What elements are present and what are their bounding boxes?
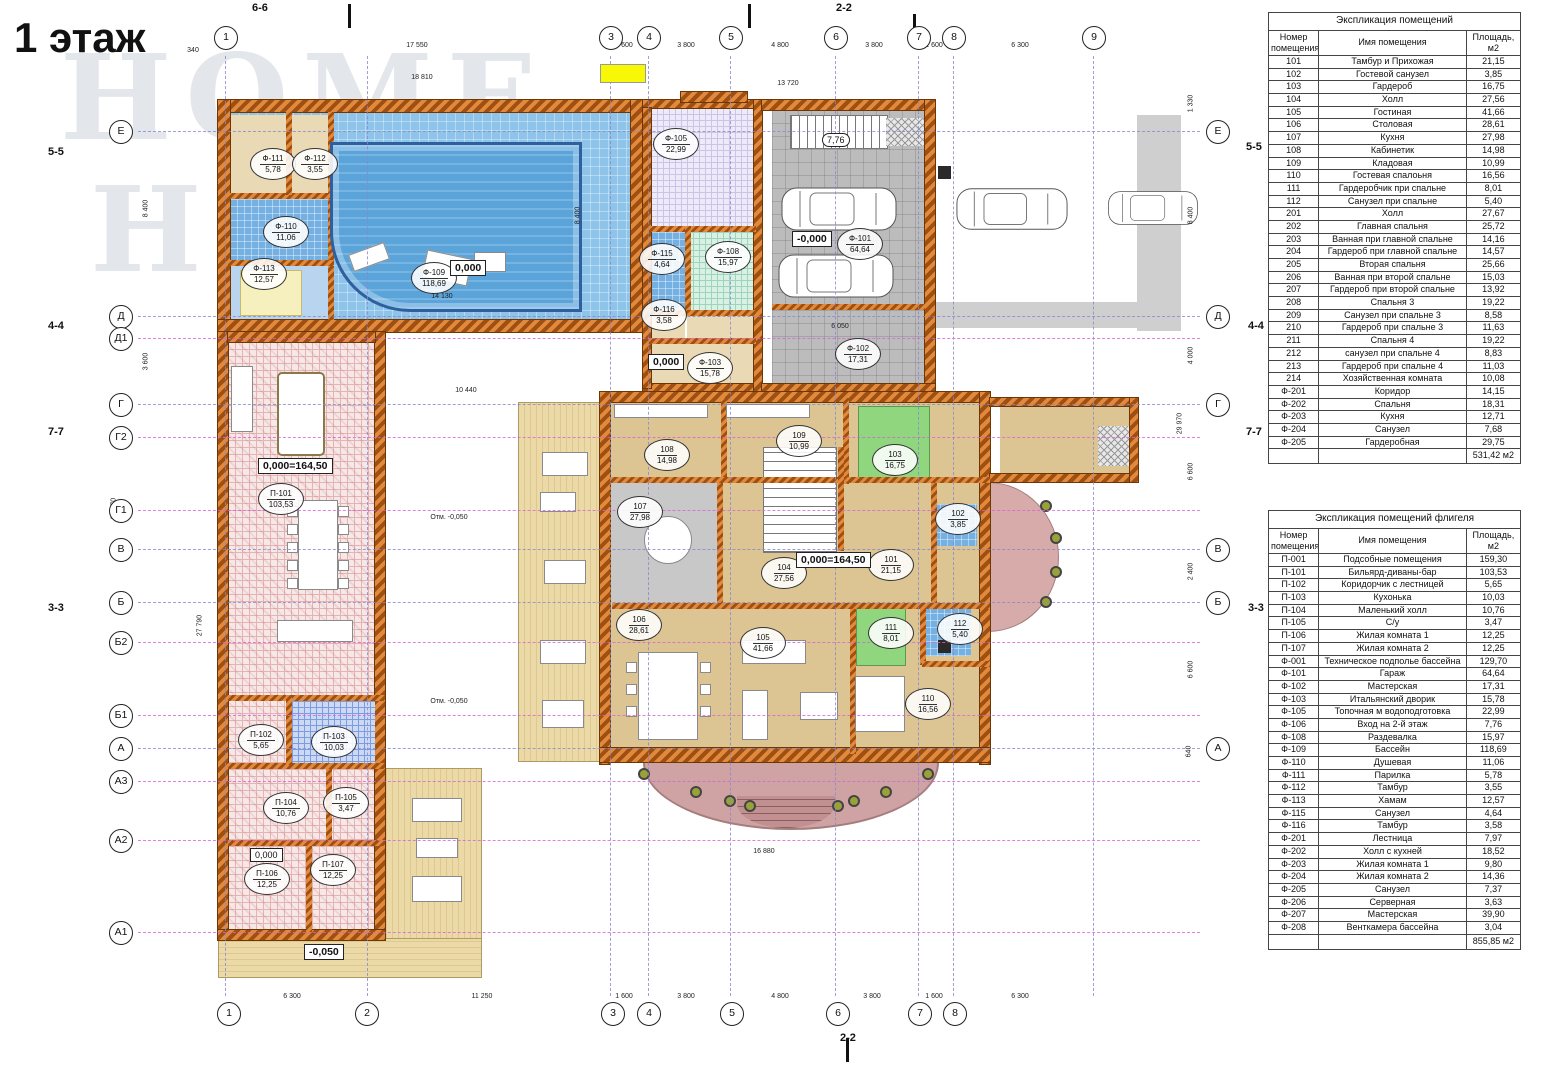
table-cell: 14,16: [1466, 233, 1520, 246]
table-cell: Ф-206: [1269, 896, 1319, 909]
axis-label: 7: [907, 26, 931, 50]
section-marker: 3-3: [48, 602, 64, 614]
grid-line: [138, 642, 1200, 643]
table-cell: Мастерская: [1319, 909, 1467, 922]
axis-label: Б: [109, 591, 133, 615]
room-label: 10814,98: [644, 439, 690, 471]
table-cell: Тамбур: [1319, 782, 1467, 795]
table-row: 210Гардероб при спальне 311,63: [1269, 322, 1521, 335]
table-row: 106Столовая28,61: [1269, 119, 1521, 132]
table-cell: 206: [1269, 271, 1319, 284]
table-row: Ф-109Бассейн118,69: [1269, 744, 1521, 757]
dimension-label: 1 600: [606, 993, 642, 1000]
room-label: П-1053,47: [323, 787, 369, 819]
level-mark: -0,050: [304, 944, 344, 960]
gate-post: [938, 166, 951, 179]
table-cell: 12,71: [1466, 411, 1520, 424]
level-mark: -0,000: [792, 231, 832, 247]
table-cell: Ф-103: [1269, 693, 1319, 706]
table-cell: Ф-111: [1269, 769, 1319, 782]
dimension-label: 27 790: [197, 604, 204, 648]
table-cell: 118,69: [1466, 744, 1520, 757]
table-cell: Душевая: [1319, 757, 1467, 770]
table-row: Ф-115Санузел4,64: [1269, 807, 1521, 820]
grid-line: [138, 715, 1200, 716]
grid-line: [138, 602, 1200, 603]
table-row: Ф-206Серверная3,63: [1269, 896, 1521, 909]
wall: [772, 304, 925, 310]
outdoor-table: [416, 838, 458, 858]
table-cell: [1319, 934, 1467, 949]
table-cell: Вторая спальня: [1319, 259, 1467, 272]
column-icon: [832, 800, 844, 812]
axis-label: 3: [601, 1002, 625, 1026]
axis-label: Е: [1206, 120, 1230, 144]
wall: [762, 100, 935, 110]
dimension-label: 6 300: [1000, 42, 1040, 49]
table-cell: Ф-112: [1269, 782, 1319, 795]
table-cell: Маленький холл: [1319, 604, 1467, 617]
table-row: Ф-201Коридор14,15: [1269, 385, 1521, 398]
dimension-label: 4 800: [762, 993, 798, 1000]
table-row: 206Ванная при второй спальне15,03: [1269, 271, 1521, 284]
table-cell: Ф-113: [1269, 795, 1319, 808]
deck-sofa: [540, 492, 576, 512]
table-cell: Санузел при спальне: [1319, 195, 1467, 208]
deck-sofa: [542, 700, 584, 728]
table-cell: 17,31: [1466, 680, 1520, 693]
section-marker: 2-2: [836, 2, 852, 14]
chair: [287, 524, 298, 535]
table-cell: Коридор: [1319, 385, 1467, 398]
grid-line: [138, 404, 1200, 405]
table-cell: Санузел при спальне 3: [1319, 309, 1467, 322]
table-cell: Гардероб: [1319, 81, 1467, 94]
table-cell: Хозяйственная комната: [1319, 373, 1467, 386]
chair: [338, 542, 349, 553]
corridor-floor: [687, 314, 754, 340]
table-cell: 4,64: [1466, 807, 1520, 820]
table-cell: 111: [1269, 182, 1319, 195]
table-cell: Бильярд-диваны-бар: [1319, 566, 1467, 579]
table-cell: 207: [1269, 284, 1319, 297]
deck-sofa: [540, 640, 586, 664]
table-cell: Гардероб при второй спальне: [1319, 284, 1467, 297]
table-cell: Санузел: [1319, 883, 1467, 896]
room-label: 10910,99: [776, 425, 822, 457]
room-label: 10727,98: [617, 496, 663, 528]
level-mark: 0,000: [450, 260, 486, 276]
table-total: 855,85 м2: [1466, 934, 1520, 949]
axis-label: Г: [1206, 393, 1230, 417]
table-row: П-106Жилая комната 112,25: [1269, 630, 1521, 643]
table-row: Ф-111Парилка5,78: [1269, 769, 1521, 782]
table-cell: 7,97: [1466, 833, 1520, 846]
table-row: Ф-110Душевая11,06: [1269, 757, 1521, 770]
bottom-deck: [218, 938, 482, 978]
table-cell: 3,58: [1466, 820, 1520, 833]
dimension-label: 13 720: [766, 80, 810, 87]
table-cell: 8,01: [1466, 182, 1520, 195]
table-row: 112Санузел при спальне5,40: [1269, 195, 1521, 208]
chair: [338, 506, 349, 517]
table-cell: 27,56: [1466, 94, 1520, 107]
table-cell: Ф-203: [1269, 858, 1319, 871]
section-marker: 3-3: [1248, 602, 1264, 614]
table-cell: Хамам: [1319, 795, 1467, 808]
table-row: 107Кухня27,98: [1269, 132, 1521, 145]
table-cell: 11,03: [1466, 360, 1520, 373]
axis-label: Г2: [109, 426, 133, 450]
dimension-label: 4 800: [762, 42, 798, 49]
kitchen-counter: [614, 404, 708, 418]
table-cell: Ф-201: [1269, 833, 1319, 846]
table-cell: 105: [1269, 106, 1319, 119]
wall: [218, 332, 228, 940]
table-cell: 9,80: [1466, 858, 1520, 871]
room-label: П-101103,53: [258, 483, 304, 515]
table-cell: Техническое подполье бассейна: [1319, 655, 1467, 668]
table-row: Ф-204Жилая комната 214,36: [1269, 871, 1521, 884]
section-marker: 4-4: [48, 320, 64, 332]
table-cell: Лестница: [1319, 833, 1467, 846]
table-cell: 129,70: [1466, 655, 1520, 668]
table-cell: 7,37: [1466, 883, 1520, 896]
room-label: 10316,75: [872, 444, 918, 476]
wall: [990, 474, 1138, 482]
table-cell: Ф-105: [1269, 706, 1319, 719]
column-icon: [1050, 532, 1062, 544]
table-cell: Коридорчик с лестницей: [1319, 579, 1467, 592]
table-title: Экспликация помещений: [1269, 13, 1521, 31]
table-cell: 18,52: [1466, 845, 1520, 858]
table-cell: П-105: [1269, 617, 1319, 630]
table-cell: Ф-208: [1269, 921, 1319, 934]
room-label: Ф-11011,06: [263, 216, 309, 248]
dimension-label: 8 400: [143, 189, 150, 229]
table-row: Ф-205Гардеробная29,75: [1269, 436, 1521, 449]
table-cell: 10,99: [1466, 157, 1520, 170]
wall: [612, 603, 990, 609]
table-cell: 3,04: [1466, 921, 1520, 934]
table-cell: 212: [1269, 347, 1319, 360]
dimension-label: 18 810: [400, 74, 444, 81]
table-cell: 8,58: [1466, 309, 1520, 322]
room-label: Ф-1115,78: [250, 148, 296, 180]
table-cell: 21,15: [1466, 56, 1520, 69]
table-cell: Кладовая: [1319, 157, 1467, 170]
chair: [287, 578, 298, 589]
table-cell: Санузел: [1319, 807, 1467, 820]
table-cell: 208: [1269, 297, 1319, 310]
axis-label: 5: [720, 1002, 744, 1026]
table-cell: 159,30: [1466, 554, 1520, 567]
sofa: [231, 366, 253, 432]
axis-label: Б: [1206, 591, 1230, 615]
chair: [338, 560, 349, 571]
table-cell: 204: [1269, 246, 1319, 259]
column-icon: [1050, 566, 1062, 578]
dimension-label: 4 000: [1188, 337, 1195, 375]
dimension-label: 16 880: [742, 848, 786, 855]
table-cell: Ф-205: [1269, 436, 1319, 449]
axis-label: В: [109, 538, 133, 562]
axis-label: 3: [599, 26, 623, 50]
dimension-label: 6 300: [272, 993, 312, 1000]
dimension-label: 2 400: [1188, 553, 1195, 591]
table-cell: 106: [1269, 119, 1319, 132]
table-cell: П-104: [1269, 604, 1319, 617]
table-cell: Гараж: [1319, 668, 1467, 681]
wall: [931, 483, 937, 603]
axis-label: 1: [217, 1002, 241, 1026]
dimension-label: 8 400: [575, 196, 582, 236]
dimension-label: 3 800: [856, 42, 892, 49]
wall: [685, 226, 691, 314]
room-label: Ф-10164,64: [837, 228, 883, 260]
table-row: 109Кладовая10,99: [1269, 157, 1521, 170]
highlight-marker: [600, 64, 646, 83]
section-tick: [846, 1038, 849, 1062]
table-cell: 10,76: [1466, 604, 1520, 617]
table-cell: Главная спальня: [1319, 220, 1467, 233]
car-icon: [780, 185, 898, 233]
table-cell: 3,85: [1466, 68, 1520, 81]
table-row: Ф-203Жилая комната 19,80: [1269, 858, 1521, 871]
dimension-label: 3 800: [854, 993, 890, 1000]
table-header: Номер помещения: [1269, 528, 1319, 554]
table-row: Ф-112Тамбур3,55: [1269, 782, 1521, 795]
table-cell: 103,53: [1466, 566, 1520, 579]
table-cell: Тамбур и Прихожая: [1319, 56, 1467, 69]
dimension-label: 3 800: [668, 993, 704, 1000]
table-cell: Раздевалка: [1319, 731, 1467, 744]
section-marker: 6-6: [252, 2, 268, 14]
grid-line: [610, 56, 611, 996]
table-cell: П-101: [1269, 566, 1319, 579]
room-label: 1125,40: [937, 613, 983, 645]
dimension-label: 1 600: [916, 993, 952, 1000]
grid-line: [138, 840, 1200, 841]
dimension-label: 3 800: [668, 42, 704, 49]
table-cell: Ванная при главной спальне: [1319, 233, 1467, 246]
table-cell: Парилка: [1319, 769, 1467, 782]
axis-label: Д: [109, 305, 133, 329]
table-cell: Ф-110: [1269, 757, 1319, 770]
table-cell: 28,61: [1466, 119, 1520, 132]
axis-label: В: [1206, 538, 1230, 562]
wall: [600, 392, 610, 764]
table-row: П-105С/у3,47: [1269, 617, 1521, 630]
wall: [228, 332, 375, 342]
table-cell: Гостевая спалоьня: [1319, 170, 1467, 183]
table-cell: 27,98: [1466, 132, 1520, 145]
table-cell: Холл с кухней: [1319, 845, 1467, 858]
dining-table: [298, 500, 338, 590]
table-cell: 25,66: [1466, 259, 1520, 272]
table-cell: 214: [1269, 373, 1319, 386]
table-cell: Гостиная: [1319, 106, 1467, 119]
grid-line: [1093, 56, 1094, 996]
table-cell: Ф-205: [1269, 883, 1319, 896]
table-cell: 5,40: [1466, 195, 1520, 208]
grid-line: [138, 932, 1200, 933]
table-header: Площадь, м2: [1466, 30, 1520, 56]
table-cell: Ф-001: [1269, 655, 1319, 668]
table-cell: Ф-203: [1269, 411, 1319, 424]
grid-line: [225, 56, 226, 996]
table-cell: 13,92: [1466, 284, 1520, 297]
wall: [631, 100, 643, 332]
room-label: Ф-10217,31: [835, 338, 881, 370]
room-label: П-10410,76: [263, 792, 309, 824]
axis-label: 1: [214, 26, 238, 50]
section-marker: 5-5: [48, 146, 64, 158]
table-row: 201Холл27,67: [1269, 208, 1521, 221]
table-row: 207Гардероб при второй спальне13,92: [1269, 284, 1521, 297]
table-row: Ф-207Мастерская39,90: [1269, 909, 1521, 922]
table-title: Экспликация помещений флигеля: [1269, 511, 1521, 529]
table-cell: 211: [1269, 335, 1319, 348]
table-cell: 209: [1269, 309, 1319, 322]
table-row: 214Хозяйственная комната10,08: [1269, 373, 1521, 386]
outdoor-sofa: [412, 798, 462, 822]
axis-label: Г: [109, 393, 133, 417]
table-cell: [1269, 449, 1319, 464]
level-mark: 0,000: [648, 354, 684, 370]
grid-line: [918, 56, 919, 996]
table-cell: Вход на 2-й этаж: [1319, 718, 1467, 731]
table-cell: Холл: [1319, 94, 1467, 107]
table-cell: 11,63: [1466, 322, 1520, 335]
table-cell: 101: [1269, 56, 1319, 69]
table-row: 205Вторая спальня25,66: [1269, 259, 1521, 272]
table-cell: Жилая комната 1: [1319, 630, 1467, 643]
table-cell: 29,75: [1466, 436, 1520, 449]
table-row: Ф-201Лестница7,97: [1269, 833, 1521, 846]
table-row: Ф-102Мастерская17,31: [1269, 680, 1521, 693]
table-row: 101Тамбур и Прихожая21,15: [1269, 56, 1521, 69]
table-cell: Ф-101: [1269, 668, 1319, 681]
table-row: 208Спальня 319,22: [1269, 297, 1521, 310]
room-label: П-10612,25: [244, 863, 290, 895]
table-cell: П-107: [1269, 642, 1319, 655]
elevation-note: Отм. -0,050: [428, 698, 470, 706]
table-row: 204Гардероб при главной спальне14,57: [1269, 246, 1521, 259]
table-cell: Ф-106: [1269, 718, 1319, 731]
table-cell: Кухонька: [1319, 592, 1467, 605]
table-cell: 11,06: [1466, 757, 1520, 770]
chair: [287, 560, 298, 571]
section-marker: 4-4: [1248, 320, 1264, 332]
table-cell: Ф-204: [1269, 423, 1319, 436]
table-row: Ф-113Хамам12,57: [1269, 795, 1521, 808]
axis-label: Б1: [109, 704, 133, 728]
room-schedule-table: Экспликация помещений Номер помещения Им…: [1268, 12, 1521, 464]
axis-label: Г1: [109, 499, 133, 523]
section-marker: 5-5: [1246, 141, 1262, 153]
dimension-label: 6 600: [1188, 651, 1195, 689]
section-tick: [348, 4, 351, 28]
table-cell: 3,55: [1466, 782, 1520, 795]
table-cell: Подсобные помещения: [1319, 554, 1467, 567]
table-cell: Ф-207: [1269, 909, 1319, 922]
grid-line: [730, 56, 731, 996]
room-label: 11016,56: [905, 688, 951, 720]
car-icon: [955, 185, 1069, 233]
dimension-label: 29 970: [1177, 402, 1184, 446]
room-label: 1118,01: [868, 617, 914, 649]
table-row: П-103Кухонька10,03: [1269, 592, 1521, 605]
axis-label: 7: [908, 1002, 932, 1026]
axis-label: А3: [109, 770, 133, 794]
table-cell: 104: [1269, 94, 1319, 107]
table-cell: Топочная м водоподготовка: [1319, 706, 1467, 719]
table-cell: П-001: [1269, 554, 1319, 567]
table-cell: Спальня 3: [1319, 297, 1467, 310]
wall: [838, 447, 844, 551]
table-cell: Ф-204: [1269, 871, 1319, 884]
table-cell: 14,98: [1466, 144, 1520, 157]
wall: [643, 384, 762, 392]
billiard-table: [277, 372, 325, 456]
table-cell: Тамбур: [1319, 820, 1467, 833]
table-cell: 107: [1269, 132, 1319, 145]
table-row: 209Санузел при спальне 38,58: [1269, 309, 1521, 322]
table-row: П-102Коридорчик с лестницей5,65: [1269, 579, 1521, 592]
table-cell: 15,03: [1466, 271, 1520, 284]
chair: [626, 662, 637, 673]
axis-label: Б2: [109, 631, 133, 655]
table-cell: 102: [1269, 68, 1319, 81]
table-cell: С/у: [1319, 617, 1467, 630]
level-mark: 0,000=164,50: [796, 552, 871, 568]
table-row: 108Кабинетик14,98: [1269, 144, 1521, 157]
room-label: Ф-10815,97: [705, 241, 751, 273]
room-label: Ф-1123,55: [292, 148, 338, 180]
kitchen-counter: [726, 404, 810, 418]
car-icon: [1107, 185, 1199, 231]
table-cell: 12,57: [1466, 795, 1520, 808]
deck-sofa: [542, 452, 588, 476]
grid-line: [138, 781, 1200, 782]
table-cell: 18,31: [1466, 398, 1520, 411]
table-row: 102Гостевой санузел3,85: [1269, 68, 1521, 81]
table-row: Ф-105Топочная м водоподготовка22,99: [1269, 706, 1521, 719]
wall: [218, 320, 643, 332]
table-cell: Кухня: [1319, 411, 1467, 424]
table-row: П-101Бильярд-диваны-бар103,53: [1269, 566, 1521, 579]
dimension-label: 640: [1186, 737, 1193, 767]
table-cell: санузел при спальне 4: [1319, 347, 1467, 360]
table-row: Ф-204Санузел7,68: [1269, 423, 1521, 436]
table-row: Ф-106Вход на 2-й этаж7,76: [1269, 718, 1521, 731]
grid-line: [138, 549, 1200, 550]
table-cell: 3,47: [1466, 617, 1520, 630]
table-cell: Санузел: [1319, 423, 1467, 436]
axis-label: А: [1206, 737, 1230, 761]
table-cell: 10,03: [1466, 592, 1520, 605]
table-cell: П-103: [1269, 592, 1319, 605]
table-row: 212санузел при спальне 48,83: [1269, 347, 1521, 360]
section-marker: 7-7: [1246, 426, 1262, 438]
dimension-label: 10 440: [444, 387, 488, 394]
axis-label: А2: [109, 829, 133, 853]
table-cell: 39,90: [1466, 909, 1520, 922]
table-cell: 14,57: [1466, 246, 1520, 259]
table-cell: Жилая комната 2: [1319, 871, 1467, 884]
table-cell: 10,08: [1466, 373, 1520, 386]
